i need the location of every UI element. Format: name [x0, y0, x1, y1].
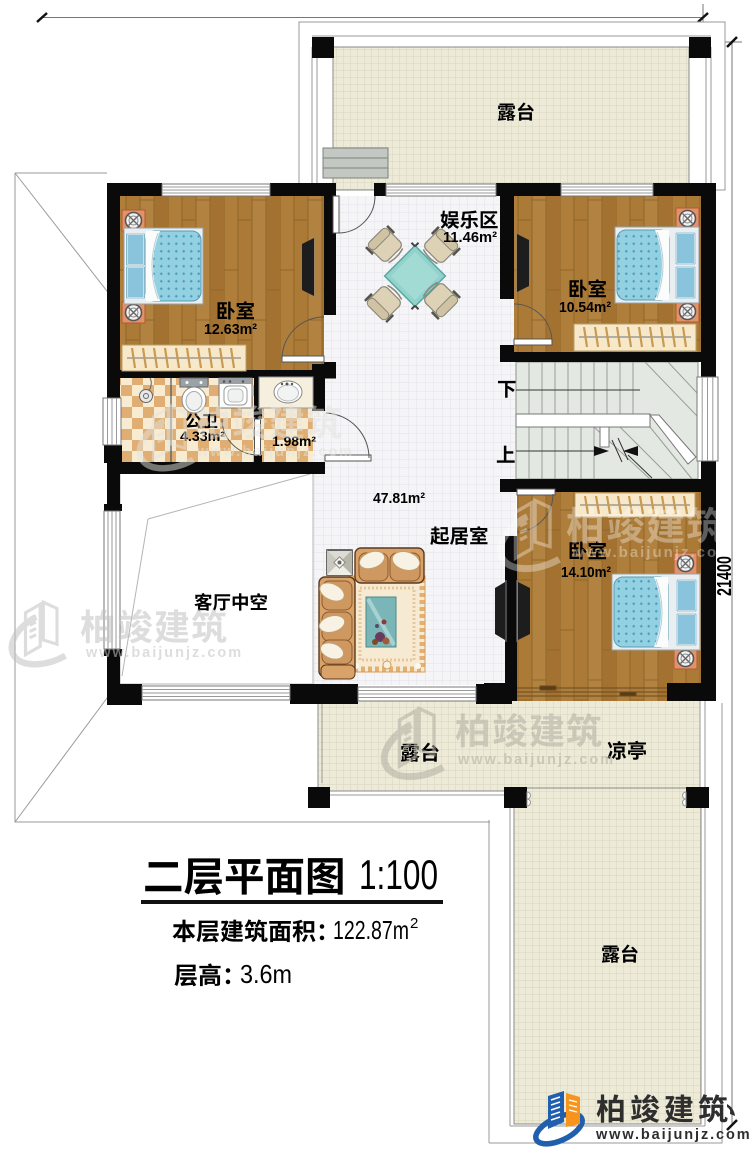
svg-text:www.baijunjz.com: www.baijunjz.com: [457, 752, 615, 768]
svg-text:www.baijunjz.com: www.baijunjz.com: [196, 444, 354, 460]
svg-text:12.63m²: 12.63m²: [204, 321, 257, 338]
svg-text:47.81m²: 47.81m²: [373, 490, 425, 507]
svg-text:21400: 21400: [714, 556, 736, 596]
svg-text:10.54m²: 10.54m²: [559, 299, 611, 316]
svg-text:11.46m²: 11.46m²: [443, 229, 497, 246]
svg-text:www.baijunjz.com: www.baijunjz.com: [595, 1127, 750, 1143]
svg-text:www.baijunjz.com: www.baijunjz.com: [85, 645, 243, 661]
svg-text:www.baijunjz.com: www.baijunjz.com: [571, 544, 733, 561]
svg-text:122.87m: 122.87m: [333, 915, 409, 945]
svg-text:2: 2: [410, 915, 418, 932]
svg-text:14.10m²: 14.10m²: [561, 564, 611, 581]
svg-text:1:100: 1:100: [359, 851, 438, 898]
svg-text:3.6m: 3.6m: [240, 959, 292, 989]
